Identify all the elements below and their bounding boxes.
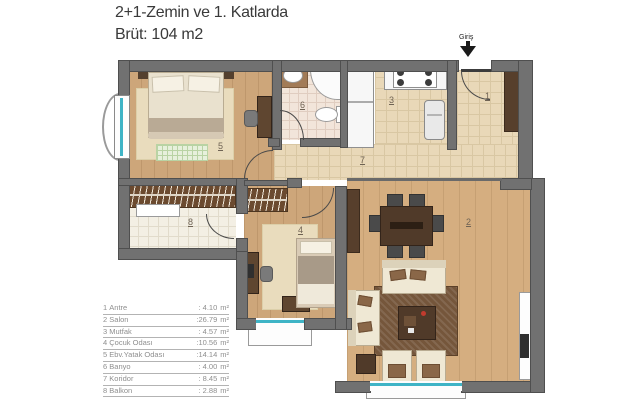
window-glass: [370, 383, 462, 386]
wall-line: [347, 178, 502, 181]
wall: [236, 318, 258, 330]
sofa-pillow: [410, 269, 427, 281]
room-label-salon: 2: [466, 218, 471, 227]
wall: [447, 60, 457, 150]
pillow: [188, 75, 221, 93]
wall: [335, 186, 347, 330]
fridge: [424, 100, 445, 140]
armchair-cushion: [422, 364, 440, 378]
legend-row: 7 Koridor : 8.45m²: [103, 374, 229, 386]
bedroom-desk: [257, 96, 272, 138]
wall: [500, 178, 532, 190]
wall: [340, 60, 348, 148]
floor-plan-page: 2+1-Zemin ve 1. Katlarda Brüt: 104 m2 Gi…: [0, 0, 640, 400]
loveseat-pillow: [357, 321, 372, 333]
room-4-closet: [244, 188, 288, 212]
window-bay: [248, 328, 312, 346]
legend-row: 3 Mutfak : 4.57m²: [103, 327, 229, 339]
entrance-label: Giriş: [459, 34, 473, 41]
balcony-window-box: [136, 204, 180, 217]
room-label-antre: 1: [485, 92, 490, 101]
sofa-back: [382, 260, 446, 268]
legend-row: 8 Balkon : 2.88m²: [103, 386, 229, 398]
fridge-handle: [427, 114, 442, 116]
wall: [268, 138, 280, 147]
foot-mat: [156, 144, 208, 161]
pillow: [300, 241, 332, 254]
window-glass: [256, 320, 304, 323]
legend-row: 4 Çocuk Odası :10.56m²: [103, 338, 229, 350]
wall: [118, 158, 130, 256]
bed-footboard: [148, 132, 224, 139]
wall: [236, 238, 248, 252]
table-decor: [421, 311, 426, 316]
toilet: [315, 107, 338, 122]
room-label-mutfak: 3: [389, 96, 394, 105]
room-label-koridor: 7: [360, 156, 365, 165]
wall: [530, 178, 545, 393]
wall: [118, 248, 248, 260]
wall: [118, 60, 130, 97]
room-label-balkon: 8: [188, 218, 193, 227]
plan-title-line2: Brüt: 104 m2: [115, 26, 203, 44]
bed-blanket: [298, 256, 334, 284]
bed-blanket: [148, 118, 224, 132]
bed-foot: [298, 284, 334, 304]
legend-row: 6 Banyo : 4.00m²: [103, 362, 229, 374]
coffee-table-tray: [404, 316, 416, 326]
utility-shaft: [347, 62, 374, 148]
entrance-arrow-icon: [460, 46, 476, 57]
side-table: [356, 354, 376, 374]
dining-chair: [387, 244, 403, 258]
desk-chair: [244, 110, 258, 127]
wall: [118, 178, 238, 186]
tv: [520, 334, 529, 358]
wall: [287, 178, 302, 188]
sideboard: [347, 189, 360, 253]
window-glass: [120, 98, 123, 156]
table-decor: [408, 328, 414, 333]
wall: [518, 60, 533, 186]
room-label-yatak: 5: [218, 142, 223, 151]
dining-chair: [409, 244, 425, 258]
pillow: [152, 75, 185, 93]
armchair-cushion: [388, 364, 406, 378]
table-runner: [390, 222, 423, 229]
wall: [118, 60, 459, 72]
wall: [300, 138, 342, 147]
burner: [397, 79, 404, 86]
wall: [335, 381, 371, 393]
room-label-banyo: 6: [300, 101, 305, 110]
plan-title-line1: 2+1-Zemin ve 1. Katlarda: [115, 4, 288, 22]
wall: [244, 180, 288, 186]
burner: [425, 79, 432, 86]
corridor-floor: [274, 144, 518, 180]
legend: 1 Antre : 4.10m² 2 Salon :26.79m² 3 Mutf…: [103, 303, 229, 397]
desk-chair: [260, 266, 273, 282]
legend-row: 5 Ebv.Yatak Odası :14.14m²: [103, 350, 229, 362]
room-label-cocuk: 4: [298, 226, 303, 235]
shaft-divider: [348, 101, 373, 103]
legend-row: 1 Antre : 4.10m²: [103, 303, 229, 315]
legend-row: 2 Salon :26.79m²: [103, 315, 229, 327]
dining-chair: [432, 215, 444, 232]
